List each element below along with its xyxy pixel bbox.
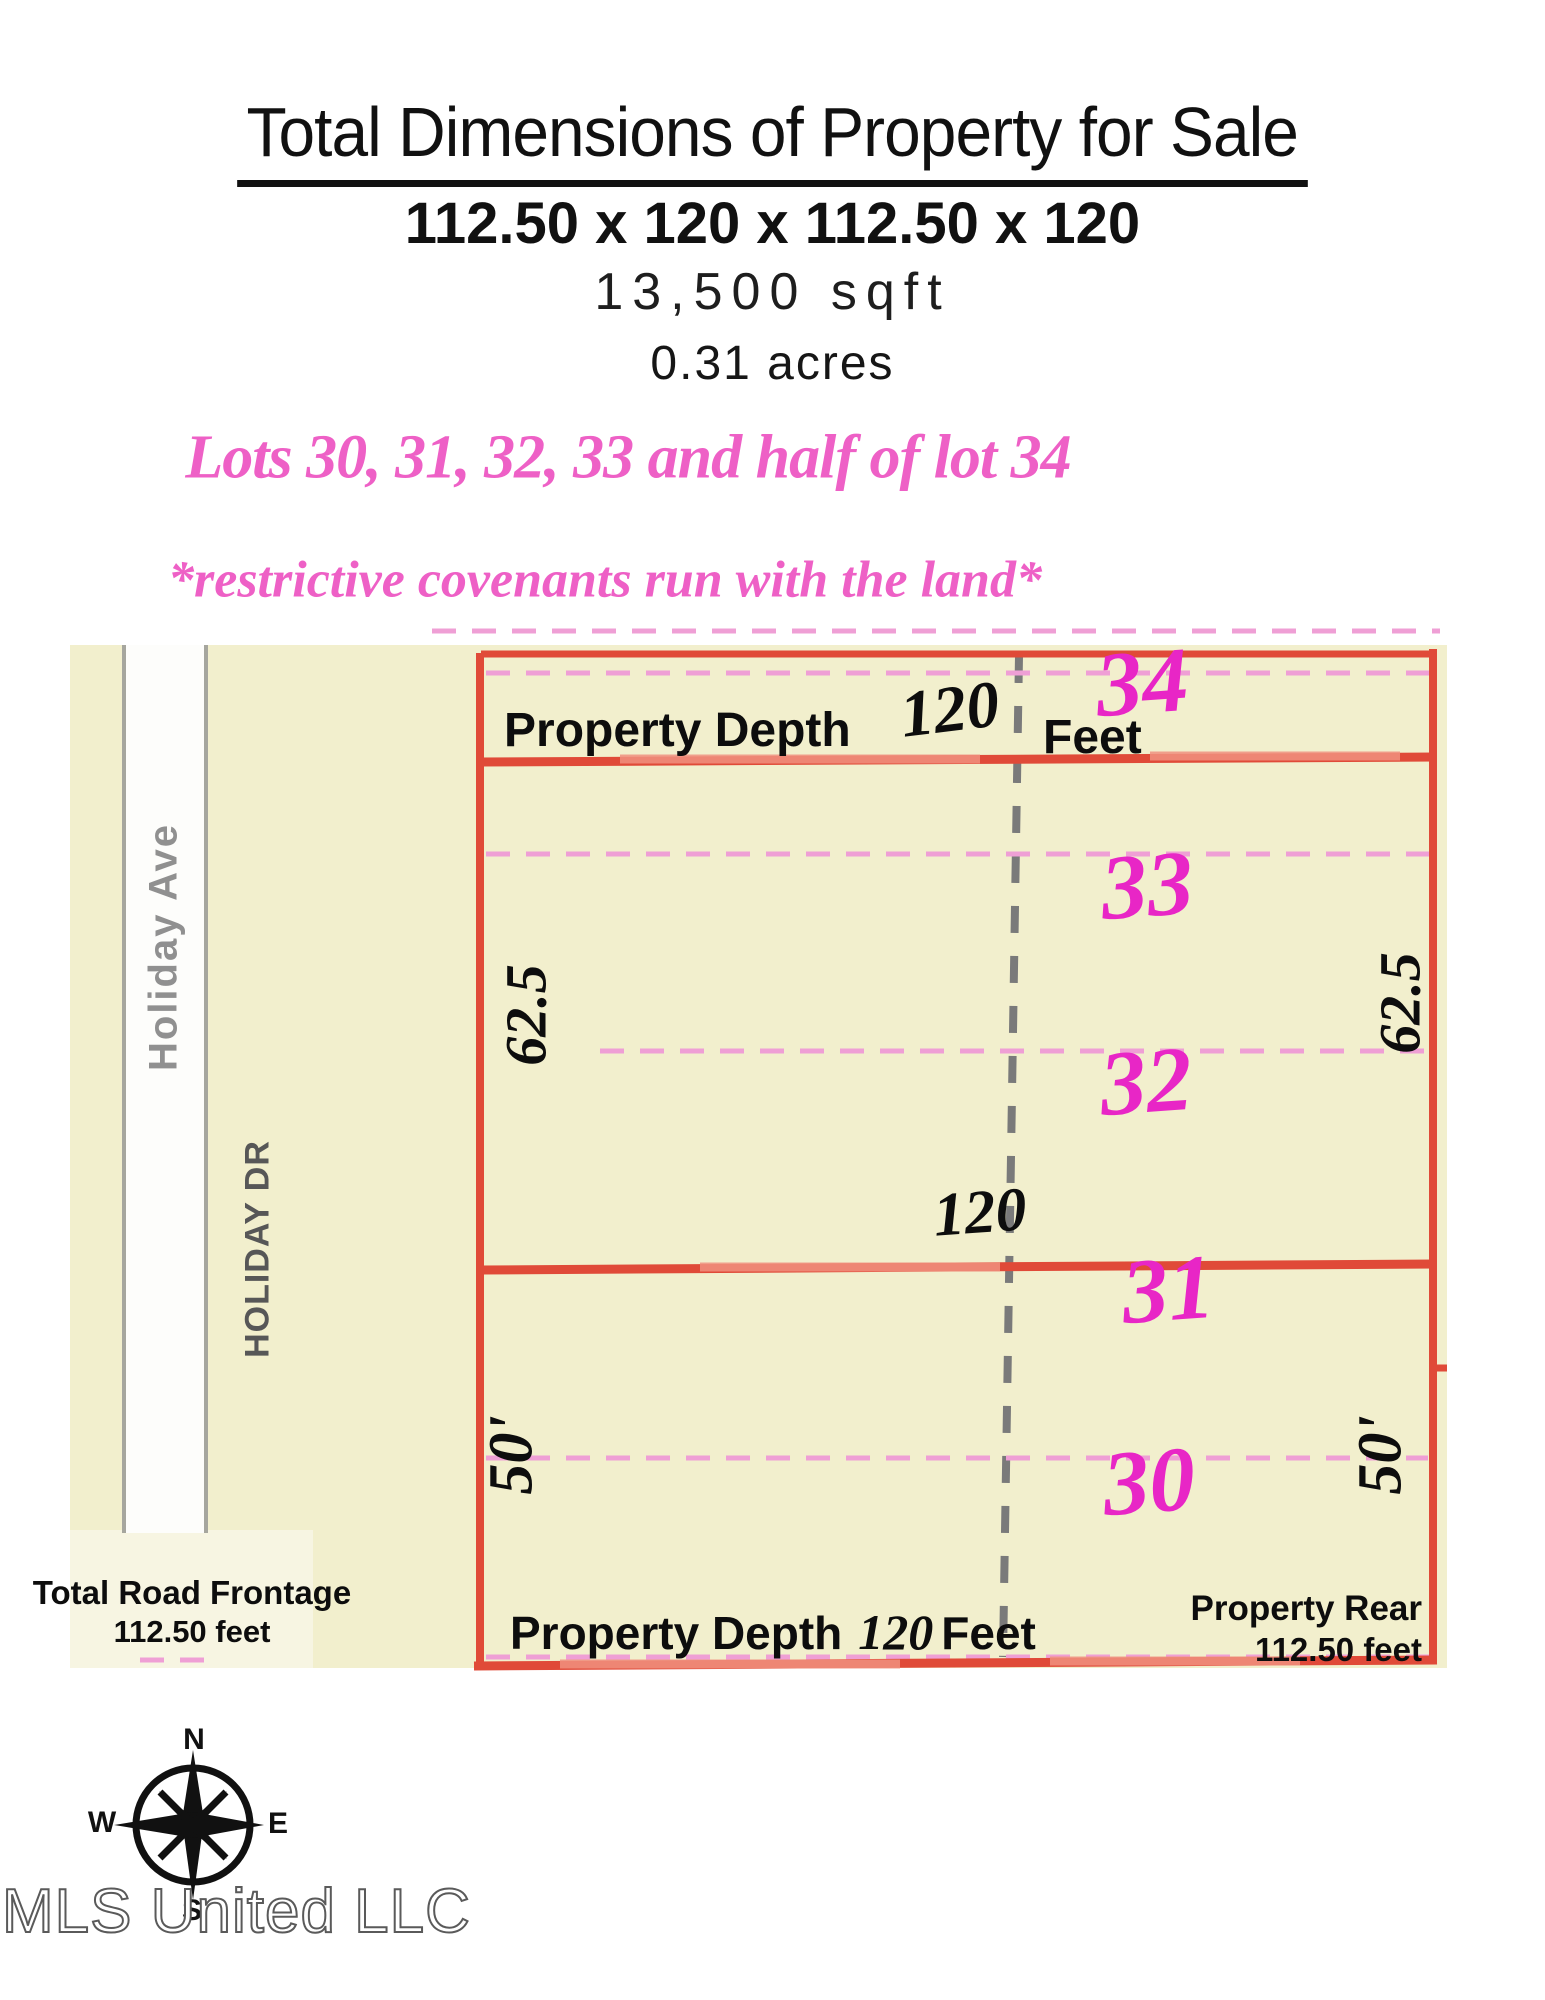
depth-value-top: 120 [896,666,1004,753]
compass-west-label: W [88,1806,116,1840]
side-dimension-62-right: 62.5 [1367,952,1434,1054]
depth-value-mid: 120 [931,1174,1029,1251]
side-dimension-62-left: 62.5 [493,964,560,1066]
compass-north-label: N [183,1723,205,1757]
lot-number-32: 32 [1096,1025,1195,1137]
property-depth-text-bottom: Property Depth [510,1607,842,1659]
total-road-frontage-label: Total Road Frontage 112.50 feet [33,1573,351,1651]
square-footage-value: 13,500 sqft [0,262,1545,322]
feet-label-bottom: Feet [941,1607,1036,1659]
street-label-holiday-dr: HOLIDAY DR [239,1140,278,1358]
property-rear-line1: Property Rear [1191,1588,1422,1630]
title-wrap: Total Dimensions of Property for Sale [0,92,1545,187]
side-dimension-50-left: 50' [477,1415,548,1494]
property-depth-label-bottom: Property Depth120Feet [510,1603,1036,1661]
covenants-note: *restrictive covenants run with the land… [168,551,1042,610]
lot-number-30: 30 [1099,1425,1198,1537]
lots-included-note: Lots 30, 31, 32, 33 and half of lot 34 [185,423,1070,494]
total-dimensions-value: 112.50 x 120 x 112.50 x 120 [0,190,1545,257]
depth-value-bottom: 120 [842,1604,941,1660]
side-dimension-50-right: 50' [1346,1415,1417,1494]
compass-east-label: E [268,1807,288,1841]
mls-watermark: MLS United LLC [2,1876,471,1947]
lot-number-34: 34 [1092,626,1191,738]
property-rear-label: Property Rear 112.50 feet [1191,1588,1422,1670]
page: { "header": { "title": "Total Dimensions… [0,0,1545,2000]
acreage-value: 0.31 acres [0,336,1545,391]
property-rear-line2: 112.50 feet [1191,1630,1422,1670]
page-title: Total Dimensions of Property for Sale [237,92,1307,187]
street-label-holiday-ave: Holiday Ave [142,823,187,1071]
lot-number-31: 31 [1118,1233,1217,1345]
road-frontage-line2: 112.50 feet [33,1613,351,1651]
property-depth-label-top: Property Depth [504,703,851,758]
road-frontage-line1: Total Road Frontage [33,1573,351,1613]
holiday-ave-road [122,645,208,1533]
lot-number-33: 33 [1097,829,1196,941]
